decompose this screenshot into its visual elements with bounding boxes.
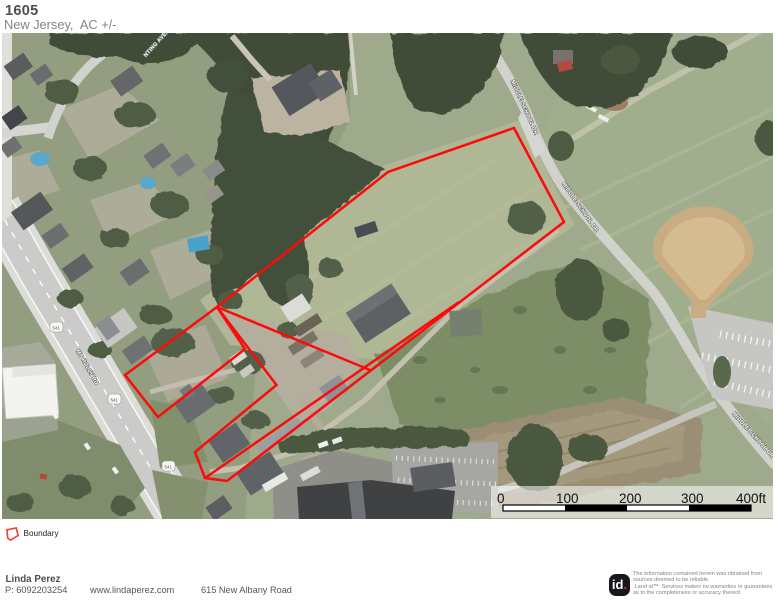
svg-text:100: 100	[556, 491, 579, 506]
svg-text:541: 541	[53, 326, 61, 331]
svg-text:541: 541	[165, 465, 173, 470]
svg-text:541: 541	[111, 398, 119, 403]
svg-text:300: 300	[681, 491, 704, 506]
svg-text:400ft: 400ft	[736, 491, 766, 506]
svg-text:0: 0	[497, 491, 505, 506]
svg-text:200: 200	[619, 491, 642, 506]
